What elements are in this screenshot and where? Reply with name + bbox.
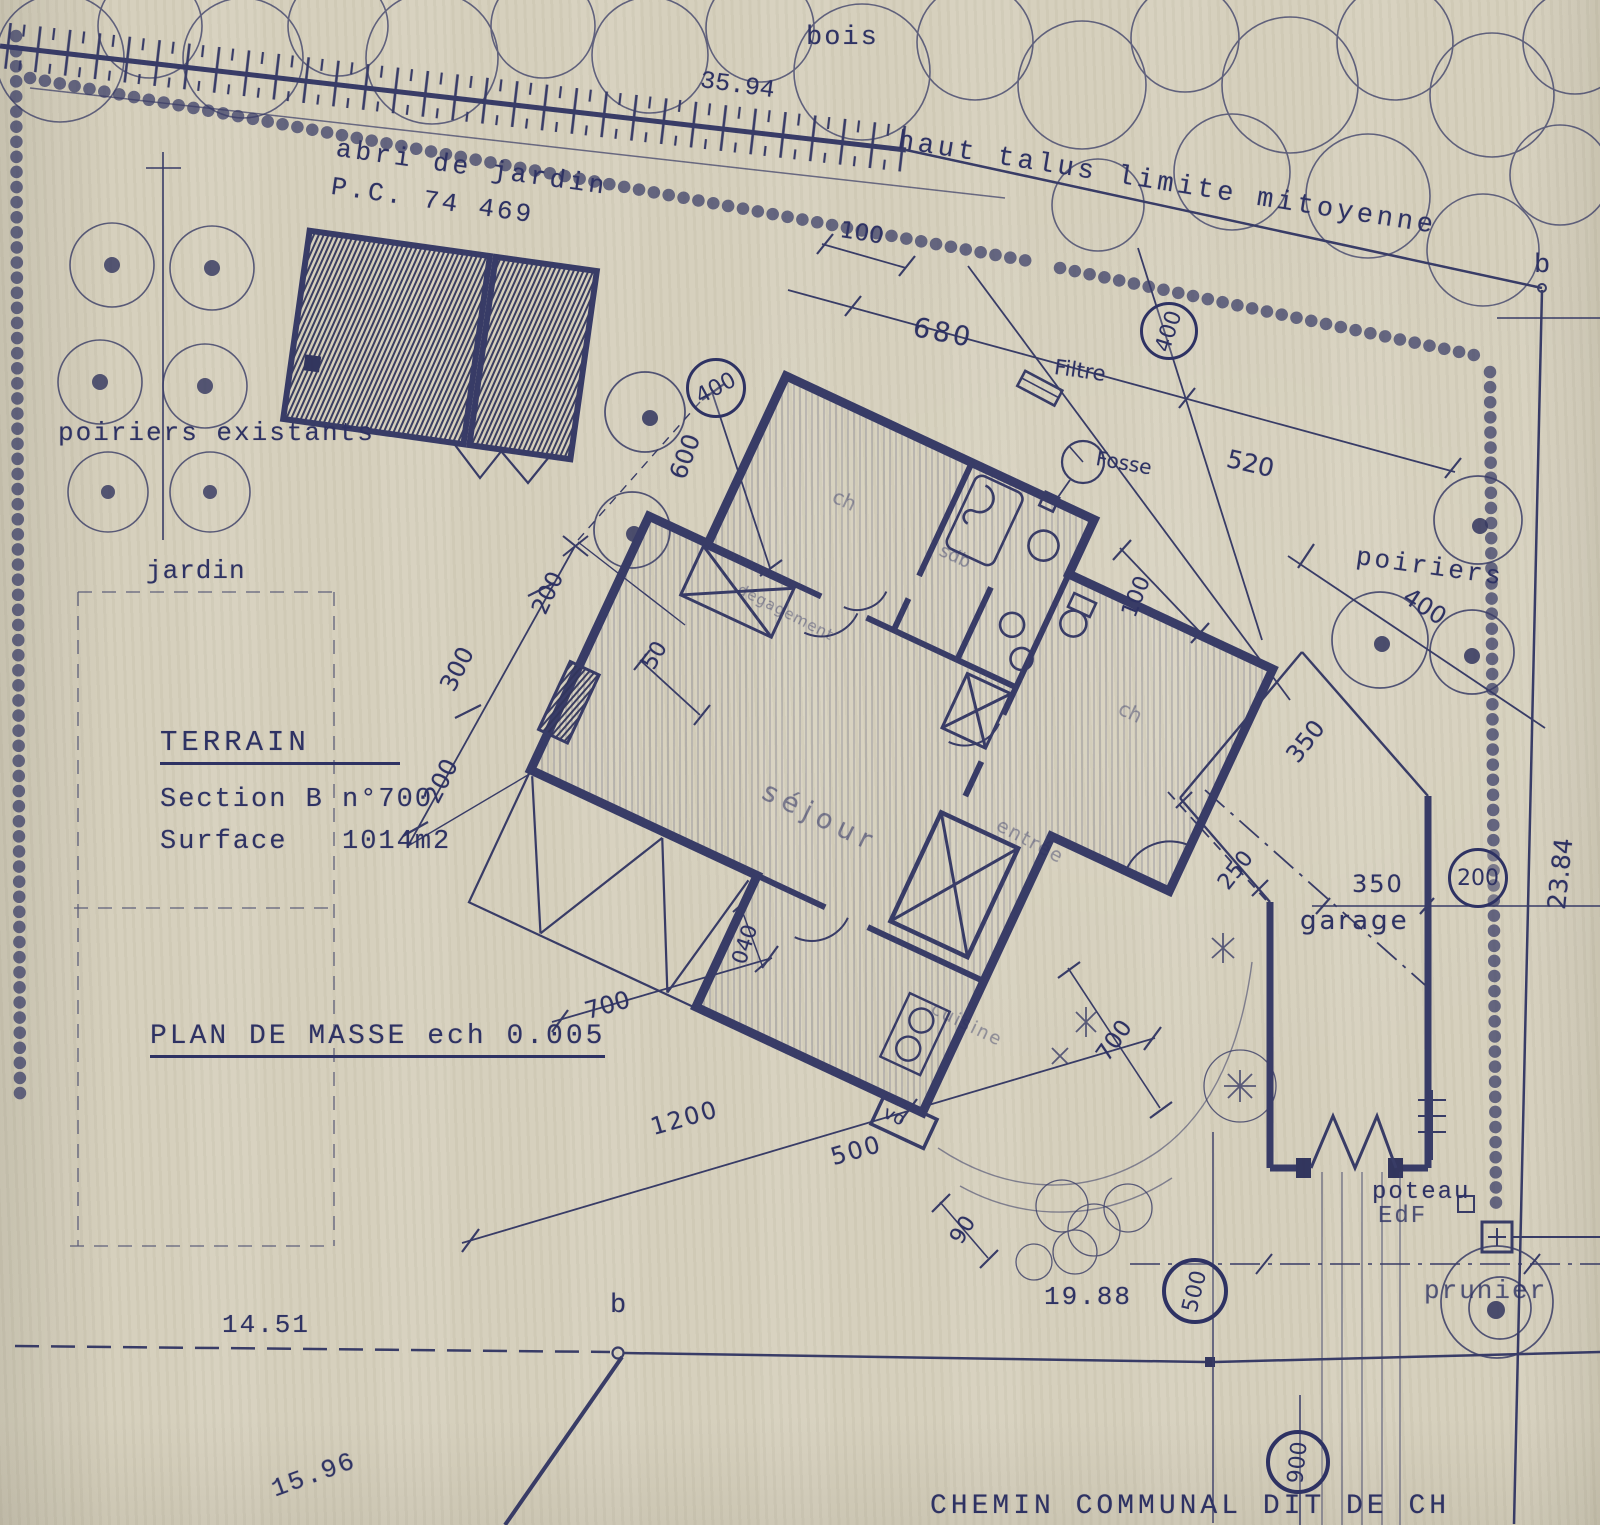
poiriers-existants-label: poiriers existants: [58, 420, 375, 447]
prunier-label: prunier: [1424, 1278, 1547, 1305]
terrain-title: TERRAIN: [160, 728, 400, 765]
dim-400-circled-top: 400: [1140, 302, 1198, 360]
site-plan-sheet: bois haut talus limite mitoyenne 35.94 a…: [0, 0, 1600, 1525]
poiriers-existants-trees: [58, 223, 254, 532]
dim-500-circled: 500: [1162, 1258, 1228, 1324]
garden-path: [938, 962, 1252, 1212]
dim-350-garage: 350: [1352, 872, 1404, 897]
poteau-label: poteau: [1372, 1180, 1470, 1205]
b-marker-top: b: [1534, 252, 1550, 280]
plan-title: PLAN DE MASSE ech 0.005: [150, 1022, 605, 1058]
dim-400-circled-left: 400: [686, 358, 746, 418]
chemin-label: CHEMIN COMMUNAL DIT DE CH: [930, 1492, 1450, 1521]
bois-label: bois: [806, 24, 879, 52]
bushes: [1016, 933, 1276, 1280]
poteau-edf-symbol: [1482, 1222, 1600, 1252]
terrain-surface: Surface 1014m2: [160, 828, 451, 856]
b-marker-bottom: b: [610, 1292, 626, 1320]
jardin-grid: [70, 592, 336, 1246]
terrain-section: Section B n°700: [160, 786, 433, 814]
dim-19-88: 19.88: [1044, 1284, 1132, 1311]
bottom-boundary: [15, 1090, 1600, 1525]
edf-label: EdF: [1378, 1204, 1427, 1229]
dim-900-circled: 900: [1266, 1430, 1330, 1494]
garage-label: garage: [1300, 908, 1410, 935]
house-plan: [447, 344, 1298, 1196]
dim-14-51: 14.51: [222, 1312, 310, 1339]
dim-200-circled: 200: [1448, 848, 1508, 908]
jardin-label: jardin: [146, 558, 246, 585]
survey-axis: [146, 152, 181, 540]
